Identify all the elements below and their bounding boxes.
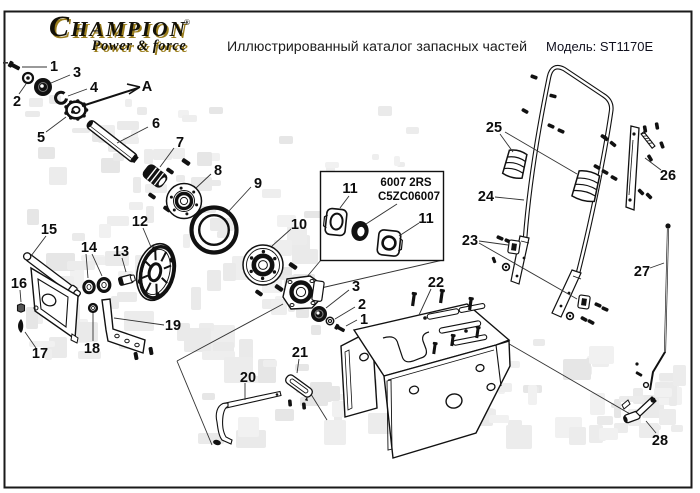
svg-text:3: 3 — [352, 279, 360, 295]
svg-text:13: 13 — [113, 244, 129, 260]
svg-text:18: 18 — [84, 341, 100, 357]
svg-text:6: 6 — [152, 116, 160, 132]
svg-text:21: 21 — [292, 345, 308, 361]
svg-text:4: 4 — [90, 80, 98, 96]
svg-text:17: 17 — [32, 346, 48, 362]
svg-text:Иллюстрированный каталог запас: Иллюстрированный каталог запасных частей — [227, 39, 527, 55]
svg-text:1: 1 — [360, 312, 368, 328]
svg-text:8: 8 — [214, 163, 222, 179]
svg-text:11: 11 — [418, 211, 433, 227]
svg-text:25: 25 — [486, 120, 502, 136]
svg-text:27: 27 — [634, 264, 650, 280]
svg-text:23: 23 — [462, 233, 478, 249]
svg-text:11: 11 — [342, 181, 357, 197]
svg-text:12: 12 — [132, 214, 148, 230]
svg-text:26: 26 — [660, 168, 676, 184]
svg-text:15: 15 — [41, 222, 57, 238]
svg-text:16: 16 — [11, 276, 27, 292]
svg-text:2: 2 — [358, 297, 366, 313]
svg-text:®: ® — [184, 18, 190, 27]
svg-text:Модель: ST1170E: Модель: ST1170E — [546, 39, 653, 54]
svg-text:9: 9 — [254, 176, 262, 192]
svg-text:22: 22 — [428, 275, 444, 291]
svg-text:6007 2RS: 6007 2RS — [380, 177, 431, 189]
svg-text:C5ZC06007: C5ZC06007 — [378, 191, 440, 203]
svg-text:7: 7 — [176, 135, 184, 151]
svg-text:3: 3 — [73, 65, 81, 81]
svg-text:14: 14 — [81, 240, 97, 256]
svg-text:28: 28 — [652, 433, 668, 449]
svg-text:24: 24 — [478, 189, 494, 205]
svg-text:Power & force: Power & force — [92, 38, 187, 54]
svg-text:10: 10 — [291, 217, 307, 233]
svg-text:19: 19 — [165, 318, 181, 334]
svg-text:20: 20 — [240, 370, 256, 386]
svg-text:1: 1 — [50, 59, 58, 75]
svg-text:A: A — [142, 79, 153, 95]
svg-text:2: 2 — [13, 94, 21, 110]
svg-text:5: 5 — [37, 130, 45, 146]
